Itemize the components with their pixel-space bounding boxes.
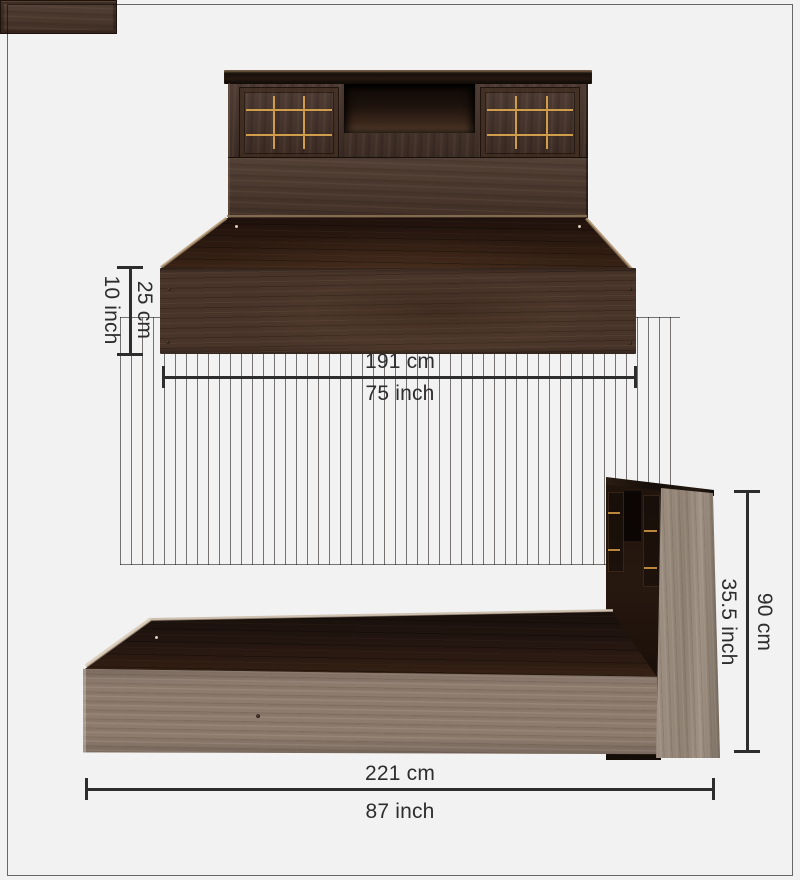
dimension-label-cm: 191 cm [365,350,435,374]
deck-screw-hole [235,225,238,228]
deck-screw-hole [155,636,158,639]
gold-inlay-edge [644,567,657,569]
dimension-cap [117,353,143,356]
dimension-cap [85,778,88,800]
cabinet-door-edge [608,492,624,572]
headboard-side-panel [656,488,720,758]
gold-inlay-hline [487,109,573,111]
deck-back-rim [227,215,587,217]
screw [166,340,170,344]
dimension-label-inch: 87 inch [365,800,434,824]
screw [628,341,632,345]
gold-inlay-edge [644,530,657,532]
gold-inlay-edge [608,512,620,514]
cabinet-door-edge [643,495,660,587]
dimension-label-cm: 221 cm [365,762,435,786]
gold-inlay-hline [487,134,573,136]
dimension-line [163,376,636,379]
dimension-cap [712,778,715,800]
headboard-lower-panel [228,157,588,219]
deck-screw-hole [578,225,581,228]
dimension-cap [734,750,760,753]
dimension-label-cm: 25 cm [132,281,156,339]
dimension-line [86,788,714,791]
dimension-label-inch: 35.5 inch [716,578,740,665]
front-view: 25 cm 10 inch 191 cm 75 inch [0,0,800,34]
screw [256,714,260,718]
rail-front-edge [83,668,86,755]
bed-front-rail [160,268,636,354]
dimension-cap [634,366,637,388]
dimension-label-inch: 10 inch [99,275,123,344]
bed-dimensions-figure: 25 cm 10 inch 191 cm 75 inch [0,0,800,880]
headboard-cabinet-door-right [480,87,580,159]
dimension-label-inch: 75 inch [365,382,434,406]
dimension-label-cm: 90 cm [752,593,776,651]
dimension-cap [734,490,760,493]
gold-inlay-vline [515,96,517,149]
gold-inlay-edge [608,549,620,551]
dimension-cap [162,366,165,388]
bed-side-rail [83,668,657,755]
dimension-line [746,492,749,752]
dimension-cap [117,266,143,269]
headboard-drawer-panel [0,0,117,34]
open-shelf-edge [624,491,641,541]
gold-inlay-vline [546,96,548,149]
screw [628,287,632,291]
screw [167,287,171,291]
bed-storage-deck [160,216,635,271]
